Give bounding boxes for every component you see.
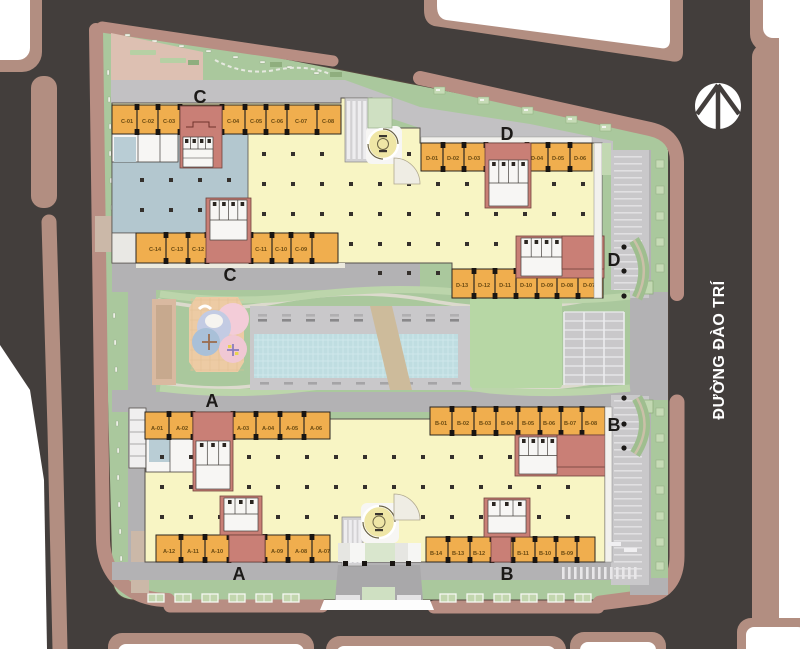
svg-text:C-01: C-01: [121, 119, 133, 125]
svg-text:D-05: D-05: [552, 156, 564, 162]
svg-text:B-13: B-13: [452, 551, 464, 557]
svg-text:C-08: C-08: [322, 119, 334, 125]
svg-text:A-02: A-02: [176, 426, 188, 432]
svg-text:C-03: C-03: [163, 119, 175, 125]
svg-text:C-07: C-07: [295, 119, 307, 125]
svg-text:C: C: [194, 87, 207, 107]
svg-text:D-12: D-12: [478, 283, 490, 289]
svg-text:A-09: A-09: [271, 549, 283, 555]
svg-text:C-05: C-05: [250, 119, 262, 125]
svg-text:A-03: A-03: [237, 426, 249, 432]
svg-text:B-03: B-03: [479, 421, 491, 427]
svg-text:A-08: A-08: [295, 549, 307, 555]
svg-text:B-04: B-04: [501, 421, 514, 427]
svg-text:D-08: D-08: [561, 283, 573, 289]
svg-text:C-10: C-10: [275, 247, 287, 253]
svg-text:B: B: [501, 564, 514, 584]
svg-text:B-05: B-05: [522, 421, 534, 427]
svg-text:B-12: B-12: [473, 551, 485, 557]
svg-text:C-13: C-13: [171, 247, 183, 253]
svg-text:A-06: A-06: [310, 426, 322, 432]
svg-text:A: A: [233, 564, 246, 584]
svg-text:B-14: B-14: [430, 551, 443, 557]
svg-text:D-04: D-04: [531, 156, 544, 162]
svg-text:A-11: A-11: [187, 549, 199, 555]
svg-text:D: D: [608, 250, 621, 270]
svg-text:C-02: C-02: [142, 119, 154, 125]
svg-text:C-06: C-06: [271, 119, 283, 125]
svg-text:C-12: C-12: [192, 247, 204, 253]
svg-text:D-06: D-06: [574, 156, 586, 162]
svg-text:B-06: B-06: [543, 421, 555, 427]
svg-text:D-02: D-02: [447, 156, 459, 162]
svg-text:B-09: B-09: [561, 551, 573, 557]
svg-text:D-03: D-03: [468, 156, 480, 162]
svg-text:A-10: A-10: [211, 549, 223, 555]
svg-text:B-07: B-07: [564, 421, 576, 427]
svg-text:B-10: B-10: [539, 551, 551, 557]
svg-text:D-13: D-13: [456, 283, 468, 289]
svg-text:D-10: D-10: [520, 283, 532, 289]
svg-text:B-08: B-08: [585, 421, 597, 427]
svg-text:A-05: A-05: [286, 426, 298, 432]
svg-text:C-11: C-11: [255, 247, 267, 253]
svg-text:D-07: D-07: [583, 283, 595, 289]
svg-text:C: C: [224, 265, 237, 285]
svg-text:D: D: [501, 124, 514, 144]
svg-text:C-04: C-04: [227, 119, 240, 125]
svg-text:C-14: C-14: [149, 247, 162, 253]
svg-text:A-04: A-04: [262, 426, 275, 432]
svg-text:A-12: A-12: [163, 549, 175, 555]
svg-text:C-09: C-09: [295, 247, 307, 253]
svg-text:D-11: D-11: [499, 283, 511, 289]
svg-text:A-01: A-01: [151, 426, 163, 432]
svg-text:D-09: D-09: [541, 283, 553, 289]
svg-text:A-07: A-07: [318, 549, 330, 555]
svg-text:B-02: B-02: [457, 421, 469, 427]
svg-text:ĐƯỜNG ĐÀO TRÍ: ĐƯỜNG ĐÀO TRÍ: [709, 280, 728, 419]
svg-text:B-11: B-11: [517, 551, 529, 557]
svg-text:B: B: [608, 415, 621, 435]
svg-text:D-01: D-01: [426, 156, 438, 162]
svg-text:B-01: B-01: [435, 421, 447, 427]
svg-text:A: A: [206, 391, 219, 411]
